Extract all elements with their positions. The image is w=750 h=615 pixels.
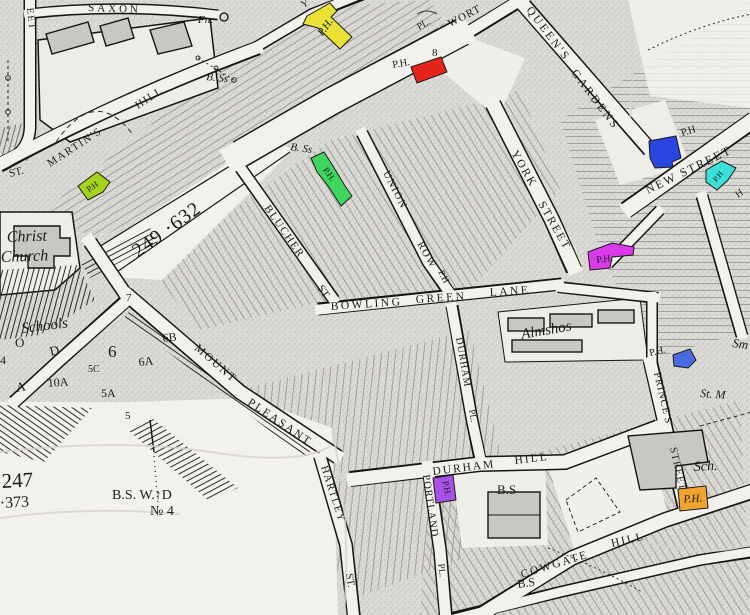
label-church: Church [1,247,49,266]
label-plot-6b: 6B [162,330,177,345]
label-parcel-373: ·373 [0,493,29,512]
map-sheet: P.H P.H. P.H. P.H P.H. P.H. P.H. SAXON E… [0,0,750,615]
label-bs-plaza: B.S [497,482,516,497]
ph-highlight-orange-label: P.H. [682,493,702,506]
street-label-portland-pl: PL. [435,563,447,578]
label-plot-5a: 5A [101,386,116,400]
label-boundary-stones-1: B. Ss [206,71,229,85]
label-school: Sch. [693,459,717,475]
label-st-m-fragment: St. M [700,386,727,402]
label-plot-6: 6 [108,342,117,361]
label-boundary-stone-wd: B.S. W.↑D [112,488,172,503]
label-fountain: Fn. [197,14,213,26]
label-plot-6a: 6A [138,353,154,368]
label-plot-5: 5 [125,410,131,422]
ph-highlight-magenta-label: P.H. [596,253,614,266]
label-boundary-stone-no4: № 4 [150,504,174,519]
label-christ: Christ [7,228,48,246]
label-plot-10a: 10A [47,375,69,390]
label-4-fragment: 4 [0,353,6,367]
label-parcel-247: 247 [1,467,34,493]
map-canvas: P.H P.H. P.H. P.H P.H. P.H. P.H. SAXON E… [0,0,750,615]
label-plot-5c: 5C [88,364,100,375]
street-label-saxon: SAXON [88,2,141,16]
almshouse [598,310,634,323]
label-number-8: 8 [432,47,438,59]
label-number-7: 7 [126,292,132,304]
label-sm-fragment: Sm [732,335,750,352]
label-o-fragment: O [15,335,24,350]
